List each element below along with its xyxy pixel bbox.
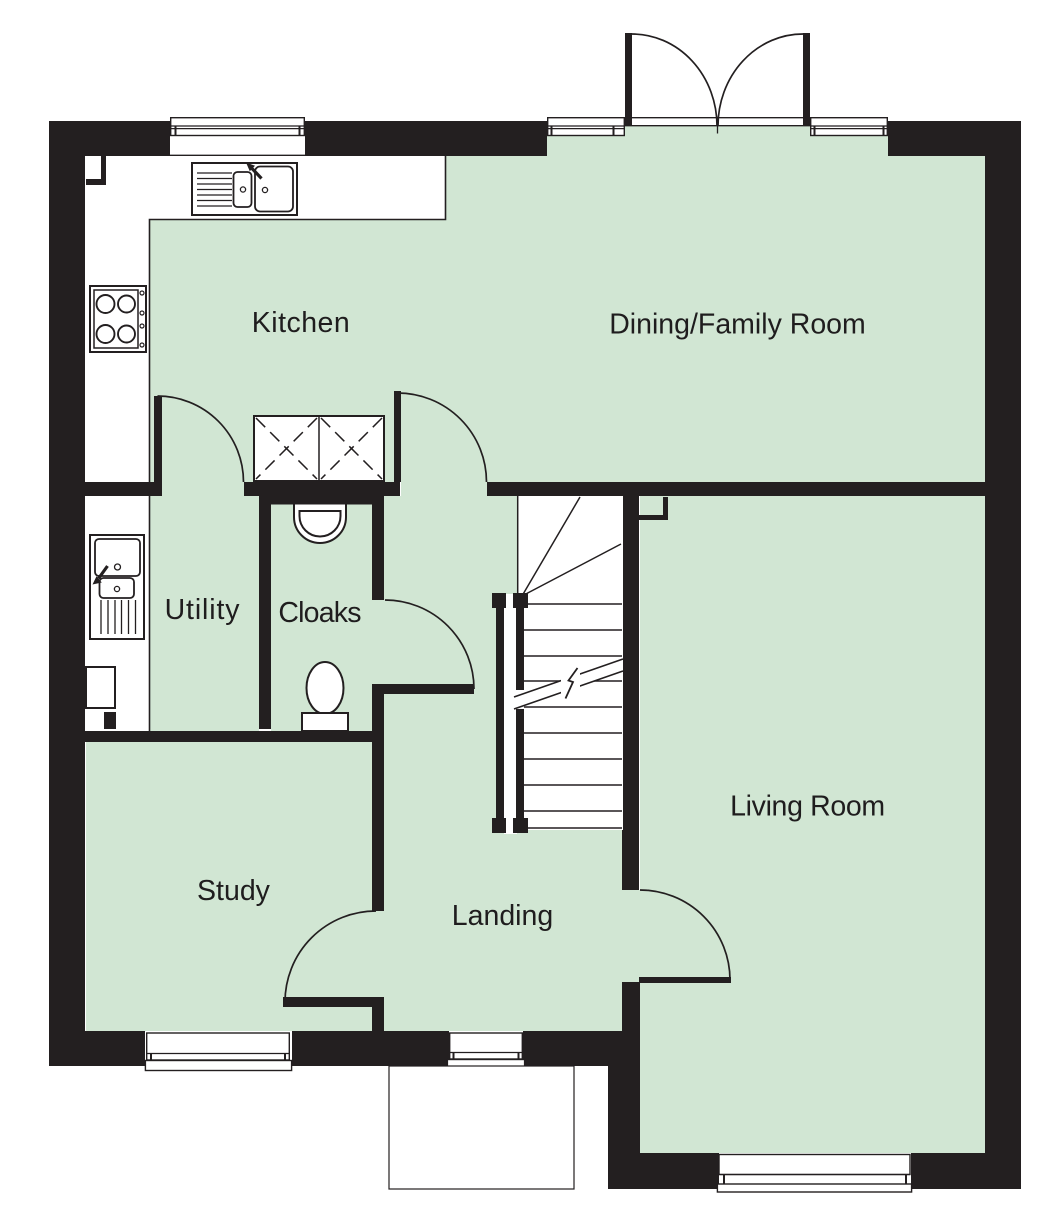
svg-text:Living Room: Living Room <box>730 791 885 823</box>
svg-text:Utility: Utility <box>165 594 241 626</box>
svg-text:Cloaks: Cloaks <box>278 597 361 629</box>
svg-text:Kitchen: Kitchen <box>252 307 350 339</box>
svg-text:Landing: Landing <box>452 900 553 932</box>
svg-text:Study: Study <box>197 875 271 907</box>
svg-text:Dining/Family Room: Dining/Family Room <box>609 309 866 341</box>
